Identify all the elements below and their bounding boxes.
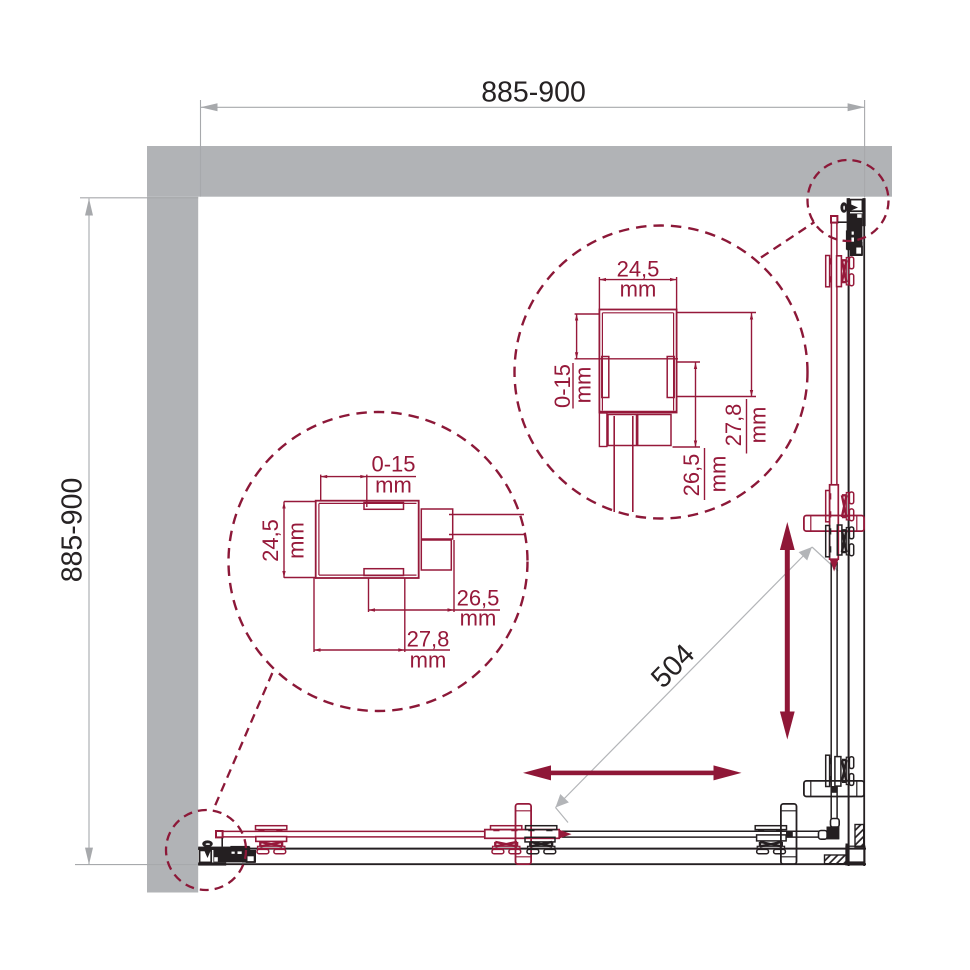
svg-text:24,5: 24,5 <box>258 519 283 562</box>
svg-text:mm: mm <box>460 606 497 631</box>
svg-text:mm: mm <box>706 456 731 493</box>
svg-text:mm: mm <box>571 367 596 404</box>
svg-text:mm: mm <box>410 648 447 673</box>
svg-text:26,5: 26,5 <box>679 454 704 497</box>
svg-text:885-900: 885-900 <box>481 77 586 109</box>
svg-text:885-900: 885-900 <box>57 478 89 583</box>
svg-text:mm: mm <box>746 407 771 444</box>
svg-text:mm: mm <box>283 522 308 559</box>
svg-text:mm: mm <box>620 277 657 302</box>
svg-text:mm: mm <box>375 473 412 498</box>
svg-text:27,8: 27,8 <box>721 404 746 447</box>
